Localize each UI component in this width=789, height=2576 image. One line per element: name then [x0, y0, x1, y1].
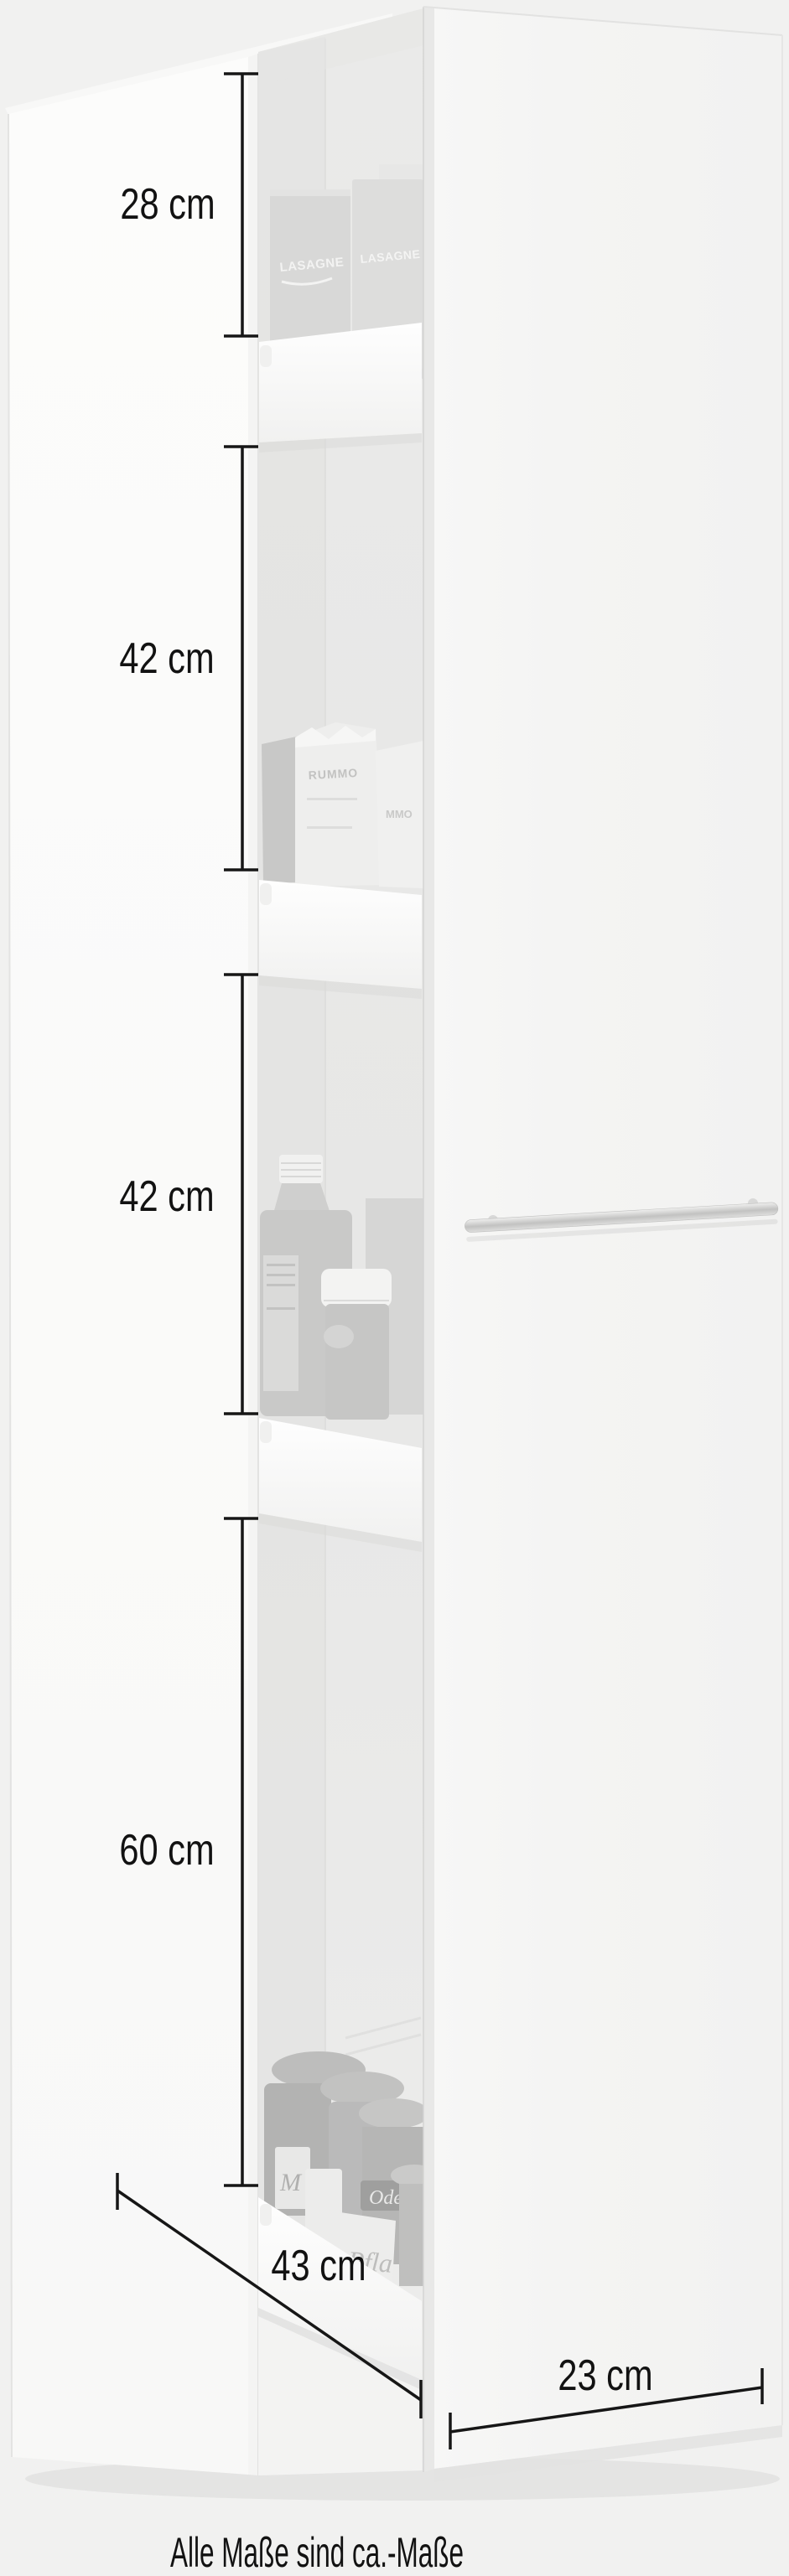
- dim-label-height-28: 28 cm: [120, 183, 215, 226]
- pasta-bag-white: [295, 722, 384, 887]
- lasagne-box-1-top: [270, 189, 350, 196]
- pasta-bag-line: [307, 826, 352, 829]
- jam-jar-3-band-text: Ode: [369, 2187, 402, 2209]
- jar-body: [325, 1304, 389, 1420]
- dim-label-height-60: 60 cm: [119, 1829, 214, 1872]
- jam-jar-3-lid: [359, 2098, 429, 2129]
- measurement-disclaimer: Alle Maße sind ca.-Maße: [170, 2532, 464, 2573]
- pasta-bag-line: [307, 798, 357, 800]
- label-line: [267, 1284, 295, 1286]
- pasta-bag-partial-text: MMO: [386, 808, 413, 820]
- cabinet-side-panel: [8, 57, 248, 2475]
- label-line: [267, 1307, 295, 1310]
- pasta-bag-white-text: RUMMO: [308, 766, 358, 782]
- product-dimension-image: LASAGNE LASAGNE RUMMO MMO: [0, 0, 789, 2576]
- pullout-front-3-clip: [260, 1421, 272, 1443]
- dim-label-height-42a: 42 cm: [119, 637, 214, 680]
- jar-white-lid: [321, 1269, 392, 1307]
- cabinet-illustration: LASAGNE LASAGNE RUMMO MMO: [0, 0, 789, 2576]
- jam-jar-4-body: [399, 2184, 423, 2286]
- dim-label-height-42b: 42 cm: [119, 1175, 214, 1218]
- dim-label-width-23: 23 cm: [558, 2354, 652, 2398]
- pullout-front-1-clip: [260, 345, 272, 367]
- dim-label-depth-43: 43 cm: [271, 2244, 366, 2288]
- pullout-front-4-clip: [260, 2204, 272, 2226]
- pullout-front-2-clip: [260, 883, 272, 905]
- label-line: [267, 1274, 295, 1276]
- jam-jar-1-label-text: M: [279, 2169, 303, 2196]
- jar-emblem: [324, 1325, 354, 1348]
- cabinet-front-edge: [248, 54, 258, 2475]
- label-line: [267, 1264, 295, 1266]
- pullout-front-2: [259, 880, 422, 989]
- door-edge: [423, 7, 434, 2472]
- pullout-front-1: [259, 323, 422, 442]
- oil-bottle-neck: [273, 1183, 330, 1213]
